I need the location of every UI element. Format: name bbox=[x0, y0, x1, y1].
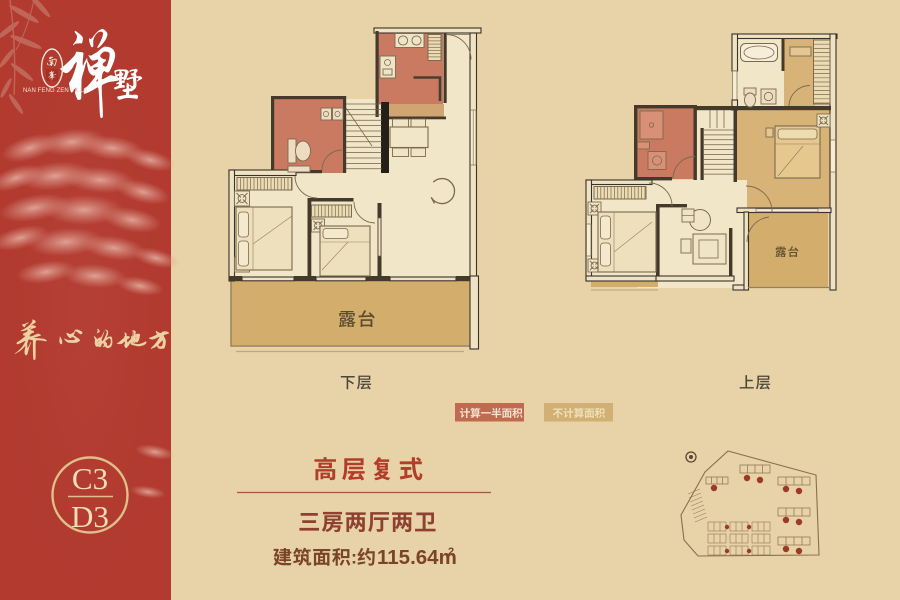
svg-text:2: 2 bbox=[448, 546, 454, 558]
svg-text:NAN FENG ZEN VILLA: NAN FENG ZEN VILLA bbox=[23, 88, 87, 94]
svg-text:C3: C3 bbox=[72, 461, 108, 496]
svg-text::: : bbox=[351, 548, 357, 568]
svg-text:D3: D3 bbox=[71, 499, 109, 534]
svg-text:115.64m: 115.64m bbox=[377, 546, 457, 569]
